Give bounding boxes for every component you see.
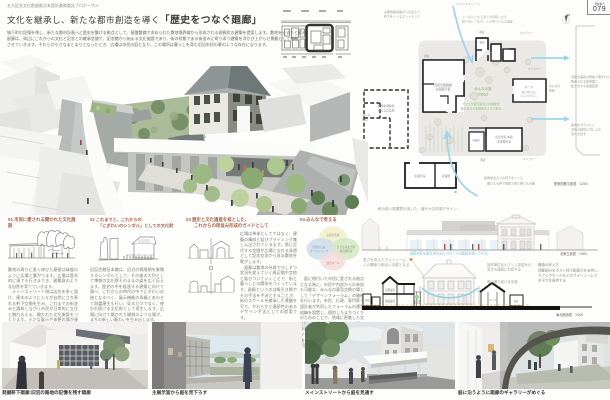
svg-text:展示ホール: 展示ホール <box>327 261 340 265</box>
svg-text:内外の環境に対し人の: 内外の環境に対し人の <box>571 127 601 132</box>
svg-text:主要幹線道路からの出入り: 主要幹線道路からの出入り <box>384 9 420 14</box>
svg-text:乗り入も軒下空間で雨り降りも可能: 乗り入も軒下空間で雨り降りも可能 <box>487 181 535 186</box>
svg-text:収蔵庫: 収蔵庫 <box>442 174 451 178</box>
svg-text:まちなみ文化財: まちなみ文化財 <box>337 245 356 249</box>
svg-text:主展示室: 主展示室 <box>414 174 425 178</box>
svg-text:回遊ひろば: 回遊ひろば <box>313 245 326 249</box>
svg-text:シンボルとなる通りの界隈となり: シンボルとなる通りの界隈となり <box>462 14 507 19</box>
svg-text:旧記念美術の増築で繋がれた庭を: 旧記念美術の増築で繋がれた庭を <box>571 74 610 79</box>
svg-text:振り合い「まち」との学びとなる廻廊: 振り合い「まち」との学びとなる廻廊 <box>462 19 513 24</box>
svg-text:N: N <box>568 13 570 17</box>
svg-text:みんなの庭: みんなの庭 <box>475 86 493 91</box>
svg-text:企画展示室: 企画展示室 <box>435 86 450 91</box>
svg-text:軒の低い配置群を用いた、緩やかな町風デザイン: 軒の低い配置群を用いた、緩やかな町風デザイン <box>378 206 457 211</box>
svg-text:ワークショップ: ワークショップ <box>310 249 329 253</box>
svg-text:ギャラリー: ギャラリー <box>528 67 541 71</box>
svg-text:変化の連続に対応する: 変化の連続に対応する <box>487 267 521 272</box>
svg-text:ホール: ホール <box>489 298 497 302</box>
svg-text:収蔵庫: 収蔵庫 <box>472 138 480 142</box>
svg-text:ホール: ホール <box>524 84 533 89</box>
svg-text:2F: 2F <box>454 190 457 194</box>
svg-text:駐車場出入りも軒下をくぐる: 駐車場出入りも軒下をくぐる <box>484 175 523 180</box>
svg-text:常設展示: 常設展示 <box>385 299 396 303</box>
svg-text:庭のまわりを廻廊のように廻る: 庭のまわりを廻廊のように廻る <box>461 106 502 111</box>
svg-text:南北断面図 1/200: 南北断面図 1/200 <box>556 312 583 317</box>
svg-text:旧記念館 本館: 旧記念館 本館 <box>495 135 513 139</box>
svg-text:環境関係者: 環境関係者 <box>340 249 353 253</box>
svg-text:緑に開かれた: 緑に開かれた <box>522 90 537 94</box>
svg-text:カフェや展示室などの機能が: カフェや展示室などの機能が <box>462 101 500 106</box>
svg-text:風の通り抜ける中庭: 風の通り抜ける中庭 <box>487 279 518 284</box>
svg-text:みんなのサロン: みんなのサロン <box>521 94 538 98</box>
svg-text:軒下をくぐるエントランス: 軒下をくぐるエントランス <box>384 14 420 19</box>
svg-text:通路: 通路 <box>480 158 486 162</box>
svg-text:カフェやホールなどのヴォリュームで: カフェやホールなどのヴォリュームで <box>538 273 598 278</box>
svg-text:みんなの広場: みんなの広場 <box>378 109 395 113</box>
svg-text:みんなの: みんなの <box>549 84 560 88</box>
svg-text:廻廊が軒を連ね 街なみとスケールの連続を感じさせる: 廻廊が軒を連ね 街なみとスケールの連続を感じさせる <box>410 251 487 256</box>
svg-text:配置図兼平面図 1/200: 配置図兼平面図 1/200 <box>554 181 588 186</box>
svg-text:伝統的景観: 伝統的景観 <box>327 233 340 237</box>
svg-text:受付: 受付 <box>479 41 485 45</box>
svg-text:回廊部分をポスト柱で鉛直力を支持し、: 回廊部分をポスト柱で鉛直力を支持し、 <box>538 268 601 273</box>
svg-text:水平力を負担する: 水平力を負担する <box>538 278 566 283</box>
svg-text:回廊: 回廊 <box>549 89 555 93</box>
svg-text:メインストリート: メインストリート <box>456 1 480 6</box>
svg-text:流れを促す: 流れを促す <box>571 131 586 136</box>
svg-text:構造の考え方: 構造の考え方 <box>538 262 559 267</box>
svg-text:高さを抑えたヴォリューム: 高さを抑えたヴォリューム <box>363 257 406 262</box>
svg-text:操作単位を小さくし街並みの: 操作単位を小さくし街並みの <box>487 262 532 267</box>
svg-text:企画展示: 企画展示 <box>385 288 396 292</box>
svg-text:続きまする収蔵配置: 続きまする収蔵配置 <box>571 83 598 88</box>
svg-text:ギャラリー: ギャラリー <box>523 157 536 161</box>
svg-text:2F: 2F <box>406 144 409 148</box>
svg-text:眺められる休憩室と: 眺められる休憩室と <box>571 79 598 84</box>
svg-text:ギャラリー: ギャラリー <box>520 31 533 35</box>
svg-text:通路: 通路 <box>424 54 430 58</box>
svg-text:2066㎡: 2066㎡ <box>478 92 489 97</box>
svg-text:との関係で明るい中庭となる: との関係で明るい中庭となる <box>363 262 410 267</box>
svg-text:旧歴史資料館: 旧歴史資料館 <box>378 104 395 108</box>
svg-text:常設展示室: 常設展示室 <box>497 140 511 144</box>
svg-text:通路: 通路 <box>479 30 485 34</box>
svg-text:室内をガラスとし: 室内をガラスとし <box>571 122 595 127</box>
